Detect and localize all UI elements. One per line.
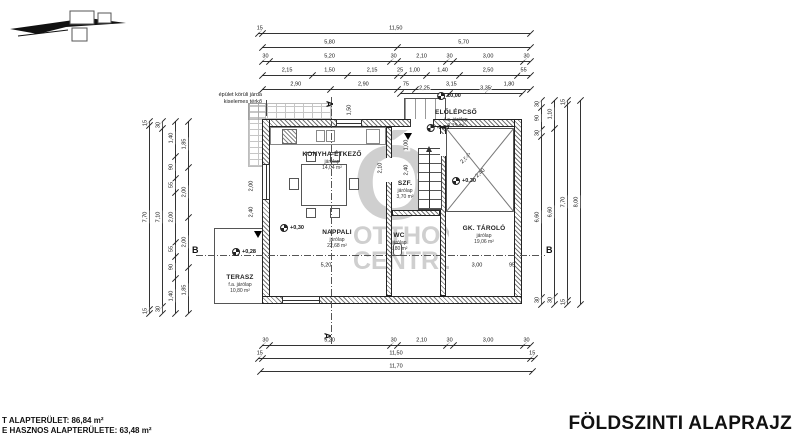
wall-right: [514, 119, 522, 304]
dim-label: 2,15: [281, 69, 294, 75]
level-crosshair-icon: [280, 224, 288, 232]
room-label: GK. TÁROLÓjárólap19,06 m²: [463, 225, 506, 245]
level-value: +0,28: [242, 249, 256, 255]
dim-label: 2,00: [182, 236, 188, 249]
dim-label: 7,70: [561, 196, 567, 209]
sink-bowl-1: [316, 130, 325, 142]
dim-label: 30: [548, 296, 554, 304]
dim-float: 1,50: [347, 104, 353, 117]
dim-label: 2,50: [482, 69, 495, 75]
level-marker: +0,30: [280, 224, 304, 232]
stair-arrow-line: [429, 150, 430, 208]
room-label: KONYHA-ÉTKEZŐjárólap14,04 m²: [302, 151, 361, 171]
chair: [306, 208, 316, 218]
dim-label: 2,25: [418, 87, 431, 93]
room-label: WCjárólap1,80 m²: [391, 232, 408, 252]
dim-label: 1,00: [408, 69, 421, 75]
room-name: NAPPALI: [322, 229, 351, 236]
dim-tick: [527, 86, 534, 93]
dim-float: 2,10: [378, 162, 384, 175]
room-area: 19,06 m²: [463, 239, 506, 245]
room-name: TERASZ: [226, 274, 253, 281]
dim-tick: [527, 30, 534, 37]
dim-label: 2,00: [182, 186, 188, 199]
dim-label: 55: [520, 69, 528, 75]
roof-projection: [446, 128, 514, 212]
dim-label: 1,40: [169, 289, 175, 302]
dim-label: 2,15: [366, 69, 379, 75]
level-marker: ±0,00: [437, 92, 461, 100]
dim-label: 30: [446, 55, 454, 61]
dim-line: [580, 100, 581, 304]
room-floor-finish: járólap: [397, 188, 414, 194]
dim-label: 30: [522, 339, 530, 345]
dim-label: 1,50: [323, 69, 336, 75]
terrace-door: [282, 296, 320, 304]
window-kitchen: [336, 119, 362, 127]
room-name: KONYHA-ÉTKEZŐ: [302, 151, 361, 158]
dim-label: 7,10: [156, 211, 162, 224]
window-living-left: [262, 164, 270, 200]
level-crosshair-icon: [437, 92, 445, 100]
chair: [349, 178, 359, 190]
dim-float: 2,40: [249, 206, 255, 219]
dim-label: 55: [169, 245, 175, 253]
room-name: GK. TÁROLÓ: [463, 225, 506, 232]
dim-label: 5,20: [323, 55, 336, 61]
dim-tick: [529, 368, 536, 375]
level-marker: +0,28: [232, 248, 256, 256]
dim-tick: [577, 301, 584, 308]
dim-float: 3,00: [471, 263, 484, 269]
level-crosshair-icon: [452, 177, 460, 185]
room-label: NAPPALIjárólap22,68 m²: [322, 229, 351, 249]
room-name: WC: [391, 232, 408, 239]
door-opening-storage: [440, 134, 446, 156]
dim-label: 11,50: [388, 27, 403, 33]
dim-label: 55: [169, 181, 175, 189]
dim-tick: [172, 310, 179, 317]
dim-line: [541, 100, 542, 304]
section-line-a: [331, 97, 332, 345]
room-floor-finish: járólap: [302, 159, 361, 165]
dim-label: 1,85: [182, 138, 188, 151]
area-summary: T ALAPTERÜLET: 86,84 m² E HASZNOS ALAPTE…: [2, 416, 152, 436]
dim-label: 3,35: [479, 87, 492, 93]
room-area: 1,80 m²: [391, 246, 408, 252]
area-summary-line2: E HASZNOS ALAPTERÜLETE: 63,48 m²: [2, 426, 152, 436]
room-floor-finish: f.a. járólap: [226, 282, 253, 288]
entry-marker-porch: [404, 133, 412, 140]
level-value: ±0,00: [447, 93, 461, 99]
dim-float: 2,00: [249, 180, 255, 193]
section-letter: B: [546, 245, 553, 255]
logo-graphic: [8, 6, 128, 50]
dim-label: 1,85: [182, 284, 188, 297]
stove: [282, 129, 297, 144]
door-opening-living: [386, 158, 392, 182]
dim-label: 30: [261, 55, 269, 61]
area-summary-line1: T ALAPTERÜLET: 86,84 m²: [2, 416, 152, 426]
wall-left: [262, 119, 270, 304]
sidewalk-note: épület körüli járda kiselemes térkő: [150, 92, 262, 105]
stair-arrow-head: [426, 146, 432, 152]
dim-tick: [519, 90, 526, 97]
room-floor-finish: járólap: [463, 233, 506, 239]
dim-line: [400, 93, 522, 94]
wall-top: [262, 119, 522, 127]
dim-label: 90: [169, 163, 175, 171]
dim-label: 1,80: [503, 83, 516, 89]
dim-label: 30: [535, 296, 541, 304]
room-name: ELŐLÉPCSŐ: [435, 109, 477, 116]
section-letter: A: [324, 101, 334, 108]
room-label: TERASZf.a. járólap10,80 m²: [226, 274, 253, 294]
dim-label: 2,90: [357, 83, 370, 89]
dim-label: 30: [446, 339, 454, 345]
dim-label: 2,00: [169, 211, 175, 224]
dim-tick: [185, 310, 192, 317]
dim-label: 25: [396, 69, 404, 75]
dim-label: 30: [156, 305, 162, 313]
dim-label: 30: [390, 339, 398, 345]
dim-label: 3,00: [482, 55, 495, 61]
floor-plan-canvas: Ó OTTHON CENTRUM épület körüli járda kis…: [0, 0, 800, 436]
dim-tick: [527, 44, 534, 51]
dim-label: 5,70: [457, 41, 470, 47]
dim-label: 6,60: [548, 206, 554, 219]
fridge: [366, 129, 380, 144]
section-letter: A: [322, 333, 332, 340]
dim-line: [149, 121, 150, 313]
dim-label: 2,10: [415, 55, 428, 61]
room-area: 14,04 m²: [302, 165, 361, 171]
dim-label: 30: [261, 339, 269, 345]
dim-label: 3,00: [482, 339, 495, 345]
dim-label: 2,10: [415, 339, 428, 345]
room-floor-finish: járólap: [322, 237, 351, 243]
dim-label: 7,70: [143, 211, 149, 224]
dim-line: [554, 100, 555, 304]
level-marker: +0,30: [452, 177, 476, 185]
dim-label: 75: [402, 83, 410, 89]
level-marker: -0,28: [427, 124, 450, 132]
dim-line: [258, 33, 530, 34]
drawing-title: FÖLDSZINTI ALAPRAJZ: [569, 413, 793, 435]
level-value: +0,30: [462, 178, 476, 184]
dim-label: 3,15: [445, 83, 458, 89]
sidewalk-note-line2: kiselemes térkő: [150, 99, 262, 106]
brand-logo: [8, 6, 128, 50]
note-leader-line: [266, 100, 267, 116]
dim-label: 30: [522, 55, 530, 61]
staircase: [418, 148, 442, 210]
room-name: SZF.: [397, 180, 414, 187]
dim-line: [260, 371, 532, 372]
level-crosshair-icon: [232, 248, 240, 256]
dim-label: 6,60: [535, 210, 541, 223]
chair: [289, 178, 299, 190]
dim-line: [162, 121, 163, 313]
section-letter: B: [192, 245, 199, 255]
dim-label: 11,50: [388, 352, 403, 358]
dim-float: 1,00: [404, 139, 410, 152]
dim-label: 1,40: [169, 132, 175, 145]
dim-label: 11,70: [388, 365, 403, 371]
room-area: 10,80 m²: [226, 288, 253, 294]
level-value: +0,30: [290, 225, 304, 231]
dim-line: [567, 100, 568, 304]
dim-float: 2,40: [404, 164, 410, 177]
dim-label: 1,10: [548, 108, 554, 121]
room-floor-finish: f.a. járólap: [435, 117, 477, 123]
room-floor-finish: járólap: [391, 240, 408, 246]
level-value: -0,28: [437, 125, 450, 131]
room-area: 22,68 m²: [322, 243, 351, 249]
dim-label: 5,80: [323, 41, 336, 47]
dim-label: 90: [535, 114, 541, 122]
sidewalk-note-line1: épület körüli járda: [150, 92, 262, 99]
room-label: SZF.járólap3,70 m²: [397, 180, 414, 200]
dim-line: [175, 121, 176, 313]
level-crosshair-icon: [427, 124, 435, 132]
entry-marker-terrace: [254, 231, 262, 238]
dim-label: 1,40: [436, 69, 449, 75]
dim-label: 2,90: [289, 83, 302, 89]
dim-tick: [527, 72, 534, 79]
dim-label: 90: [169, 263, 175, 271]
dim-label: 8,00: [574, 196, 580, 209]
dim-line: [258, 358, 534, 359]
dim-label: 30: [390, 55, 398, 61]
wall-wc: [392, 210, 440, 216]
room-area: 3,70 m²: [397, 194, 414, 200]
